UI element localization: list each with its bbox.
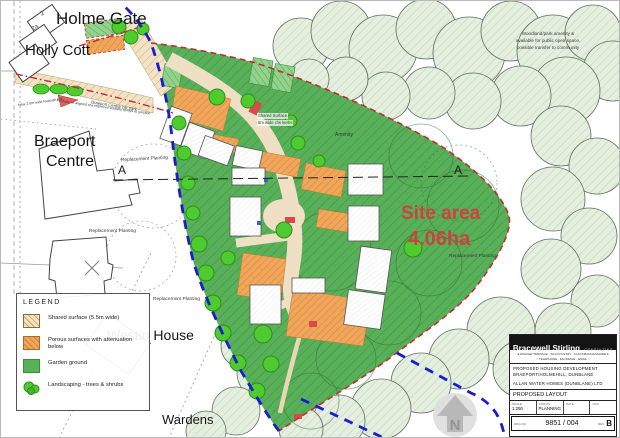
- section-marker-a-left: A: [118, 164, 126, 177]
- legend-item-label: Landscaping - trees & shrubs: [48, 381, 123, 389]
- date-label: DATE: [566, 402, 588, 406]
- label-wardens: Wardens: [162, 413, 214, 427]
- tree-icon: [23, 381, 40, 395]
- office-line-1: WALKER TERRACE · TILLICOULTRY · CLACKMAN…: [512, 352, 614, 357]
- client-name: ALLAN WATER HOMES (DUNBLANE) LTD: [513, 381, 613, 387]
- legend-item-label: Garden ground: [48, 359, 87, 367]
- landscaping-trees-swatch: [23, 381, 40, 395]
- section-marker-a-right: A: [454, 164, 462, 177]
- note-replacement-planting-4: Replacement Planting: [449, 254, 496, 259]
- note-woodland-2: available for public open space,: [506, 39, 590, 44]
- site-plan-sheet: Holme Gate Holly Cott Braeport Centre We…: [0, 0, 620, 438]
- label-braeport-line1: Braeport: [34, 134, 95, 151]
- legend-title: LEGEND: [23, 299, 143, 306]
- note-shared-surface-1: Shared Surface: [257, 113, 288, 119]
- drawing-number-row: DRG NO 9851 / 004 REV B: [511, 416, 615, 431]
- shared-surface-swatch: [23, 314, 40, 328]
- drg-label: DRG NO: [514, 422, 526, 426]
- legend-item-label: Shared surface (5.5m wide): [48, 314, 119, 322]
- label-holly-cott: Holly Cott: [25, 43, 90, 59]
- status-field: STATUS PLANNING: [536, 401, 563, 414]
- title-block: Bracewell Stirling CONSULTING WALKER TER…: [509, 334, 617, 437]
- scale-value: 1:250: [512, 406, 534, 411]
- title-block-fields: SCALE 1:250 STATUS PLANNING DATE CKD: [510, 401, 616, 415]
- note-replacement-planting-3: Replacement Planting: [153, 297, 200, 302]
- north-arrow: N: [427, 391, 483, 438]
- legend-item-label: Porous surfaces with attenuation below: [48, 336, 134, 351]
- drawing-title: PROPOSED LAYOUT: [510, 390, 616, 401]
- label-holme-gate: Holme Gate: [56, 10, 147, 28]
- legend-item-landscaping: Landscaping - trees & shrubs: [23, 381, 143, 395]
- legend: LEGEND Shared surface (5.5m wide) Porous…: [16, 293, 150, 411]
- rev-label: REV: [598, 422, 604, 426]
- note-replacement-planting-2: Replacement Planting: [89, 229, 136, 234]
- label-site-area-value: 4.06ha: [408, 229, 470, 250]
- scale-field: SCALE 1:250: [510, 401, 536, 414]
- label-site-area: Site area: [401, 204, 480, 224]
- project-line-2: BRAEPORT/HOLMEHILL, DUNBLANE: [513, 372, 613, 378]
- note-shared-surface-2: 5m wide c/w kerbs: [257, 120, 293, 126]
- note-woodland-3: possible transfer to community: [506, 46, 590, 51]
- office-line-2: TELEPHONE · FACSIMILE · EMAIL: [512, 357, 614, 362]
- title-block-header: Bracewell Stirling CONSULTING: [510, 335, 616, 350]
- porous-surface-swatch: [23, 336, 40, 350]
- note-amenity: Amenity: [335, 133, 353, 138]
- legend-item-porous-surface: Porous surfaces with attenuation below: [23, 336, 143, 351]
- office-details: WALKER TERRACE · TILLICOULTRY · CLACKMAN…: [510, 350, 616, 364]
- drg-number: 9851 / 004: [528, 420, 596, 427]
- legend-item-garden-ground: Garden ground: [23, 359, 143, 373]
- status-value: PLANNING: [539, 406, 561, 411]
- project-details: PROPOSED HOUSING DEVELOPMENT BRAEPORT/HO…: [510, 364, 616, 390]
- rev-value: B: [606, 419, 612, 428]
- label-braeport-line2: Centre: [46, 154, 94, 171]
- checked-field: CKD: [589, 401, 616, 414]
- checked-label: CKD: [592, 402, 614, 406]
- date-field: DATE: [563, 401, 590, 414]
- note-woodland-1: Woodland/park amenity &: [506, 32, 590, 37]
- legend-item-shared-surface: Shared surface (5.5m wide): [23, 314, 143, 328]
- north-label: N: [450, 417, 461, 434]
- garden-ground-swatch: [23, 359, 40, 373]
